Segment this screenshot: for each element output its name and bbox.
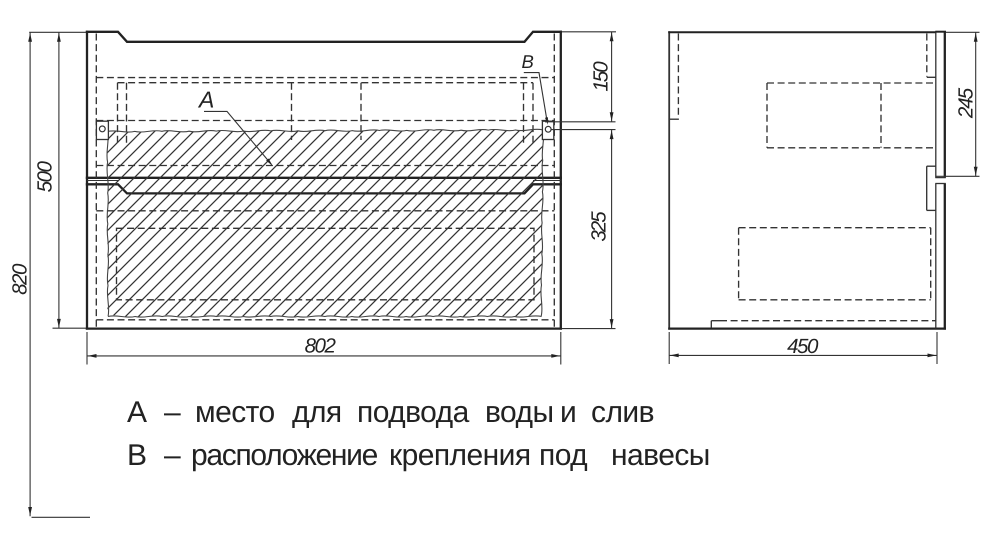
svg-text:802: 802 [305,334,337,357]
svg-text:500: 500 [34,161,57,193]
svg-text:А–местодляподводаводыислив: А–местодляподводаводыислив [127,396,654,429]
svg-text:820: 820 [9,263,32,295]
svg-text:В–расположениекрепленияподнаве: В–расположениекрепленияподнавесы [127,439,710,472]
svg-text:В: В [522,51,534,72]
svg-text:А: А [197,87,214,113]
svg-text:450: 450 [787,335,819,358]
svg-text:245: 245 [955,87,978,119]
svg-text:150: 150 [590,61,613,92]
svg-text:325: 325 [588,211,611,242]
